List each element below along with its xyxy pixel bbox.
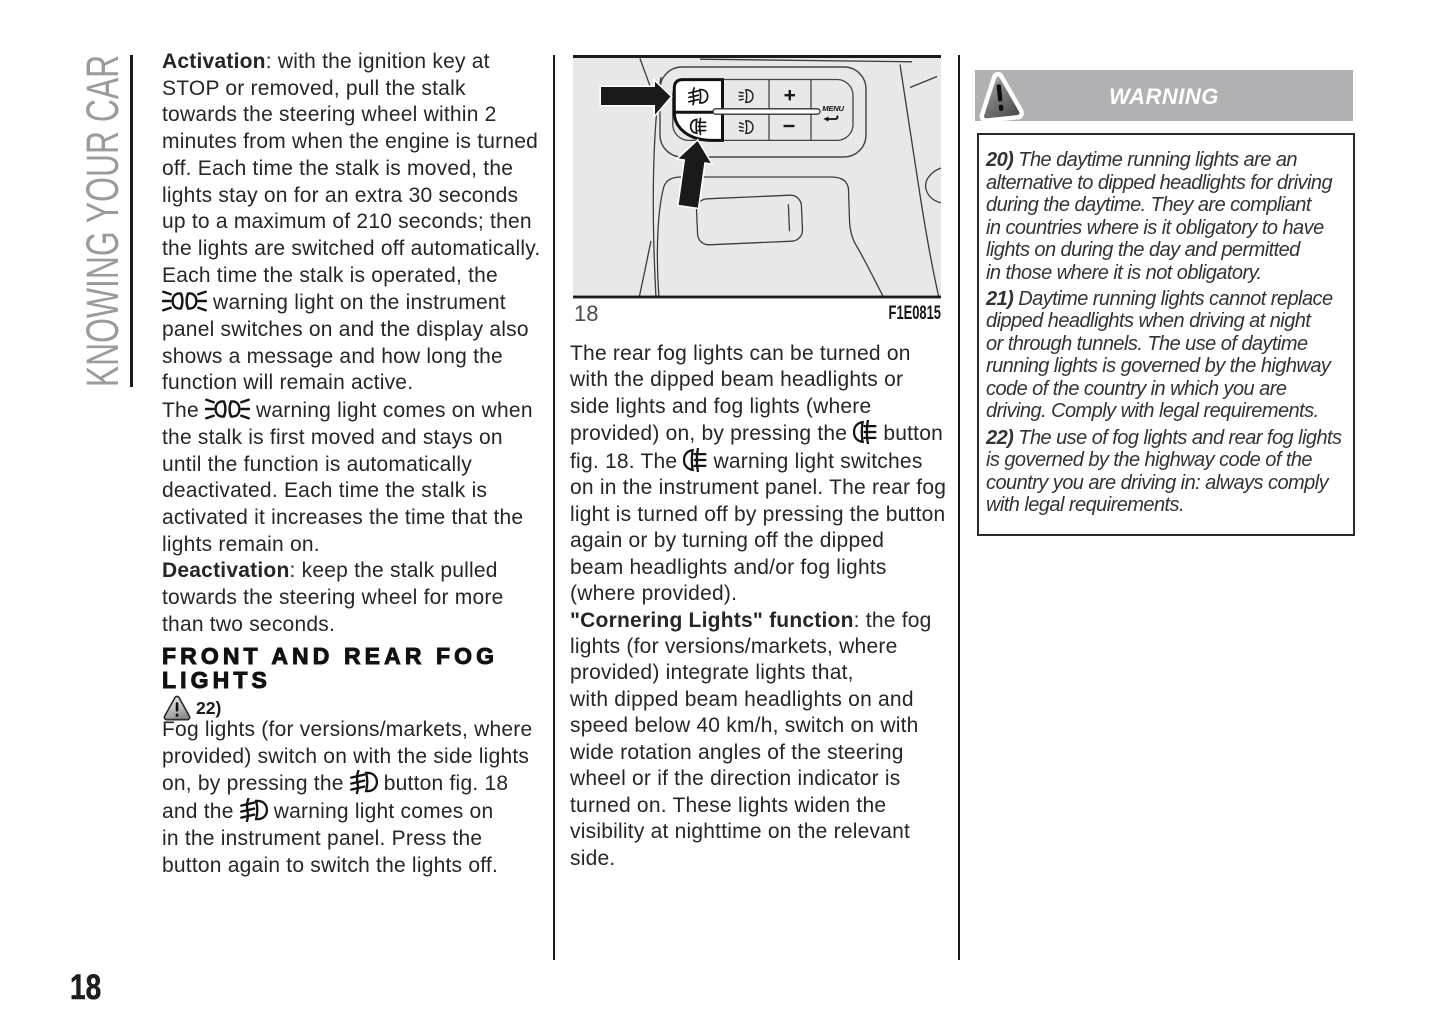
svg-text:MENU: MENU — [822, 104, 844, 113]
